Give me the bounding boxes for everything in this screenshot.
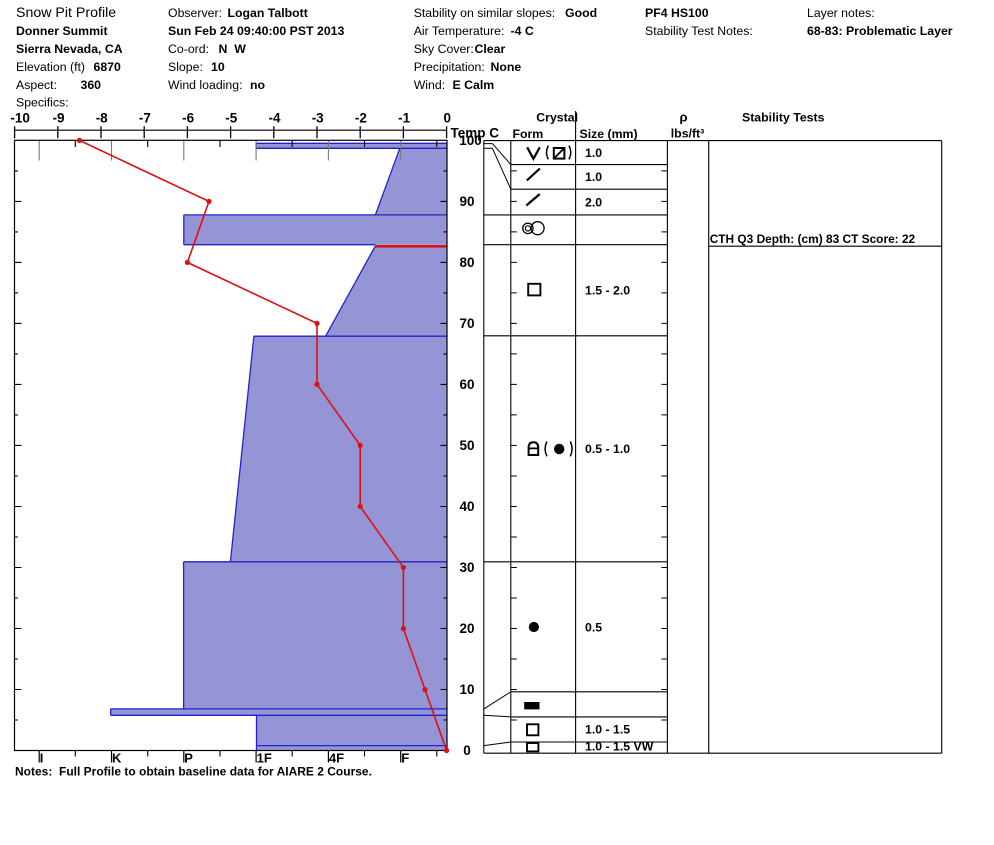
svg-text:30: 30	[459, 560, 474, 575]
svg-text:N W: N W	[219, 42, 247, 56]
svg-text:Layer notes:: Layer notes:	[807, 6, 875, 20]
svg-text:Elevation (ft): Elevation (ft)	[16, 60, 85, 74]
svg-text:K: K	[112, 751, 122, 766]
svg-text:-6: -6	[182, 111, 194, 126]
svg-text:Slope:: Slope:	[168, 60, 203, 74]
svg-text:-4 C: -4 C	[511, 24, 534, 38]
svg-text:10: 10	[211, 60, 225, 74]
svg-text:2.0: 2.0	[585, 196, 602, 210]
svg-text:0.5 - 1.0: 0.5 - 1.0	[585, 442, 630, 456]
svg-text:Stability on similar slopes:: Stability on similar slopes:	[414, 6, 555, 20]
svg-text:P: P	[184, 751, 193, 766]
svg-text:Co-ord:: Co-ord:	[168, 42, 209, 56]
svg-text:1.0: 1.0	[585, 170, 602, 184]
svg-text:-2: -2	[355, 111, 367, 126]
svg-text:360: 360	[81, 78, 102, 92]
svg-text:Form: Form	[513, 127, 544, 141]
svg-text:68-83: Problematic Layer: 68-83: Problematic Layer	[807, 24, 953, 38]
svg-text:4F: 4F	[329, 751, 344, 766]
svg-text:70: 70	[459, 316, 474, 331]
svg-text:Wind loading:: Wind loading:	[168, 78, 243, 92]
svg-text:no: no	[250, 78, 266, 92]
svg-text:20: 20	[459, 621, 474, 636]
svg-text:-8: -8	[96, 111, 108, 126]
svg-text:Sierra Nevada, CA: Sierra Nevada, CA	[16, 42, 123, 56]
svg-text:Sun Feb 24 09:40:00 PST 2013: Sun Feb 24 09:40:00 PST 2013	[168, 24, 345, 38]
svg-text:40: 40	[459, 499, 474, 514]
svg-text:-4: -4	[268, 111, 280, 126]
svg-text:60: 60	[459, 377, 474, 392]
svg-text:Aspect:: Aspect:	[16, 78, 57, 92]
svg-text:Specifics:: Specifics:	[16, 96, 69, 110]
svg-text:-3: -3	[312, 111, 324, 126]
svg-text:1.0: 1.0	[585, 146, 602, 160]
svg-text:0: 0	[463, 743, 471, 758]
svg-text:None: None	[491, 60, 522, 74]
svg-text:1.5 - 2.0: 1.5 - 2.0	[585, 284, 630, 298]
svg-text:-1: -1	[398, 111, 410, 126]
svg-text:10: 10	[459, 682, 474, 697]
svg-text:Sky Cover:: Sky Cover:	[414, 42, 474, 56]
svg-text:Stability Test Notes:: Stability Test Notes:	[645, 24, 753, 38]
svg-text:1.0 - 1.5 VW: 1.0 - 1.5 VW	[585, 740, 654, 754]
svg-text:ρ: ρ	[679, 110, 687, 125]
svg-text:lbs/ft³: lbs/ft³	[671, 127, 704, 141]
svg-text:Good: Good	[565, 6, 597, 20]
svg-text:Air Temperature:: Air Temperature:	[414, 24, 505, 38]
svg-text:-9: -9	[52, 111, 64, 126]
svg-text:Clear: Clear	[475, 42, 506, 56]
svg-text:Snow Pit Profile: Snow Pit Profile	[16, 5, 116, 21]
svg-text:-5: -5	[225, 111, 237, 126]
svg-text:Stability Tests: Stability Tests	[742, 111, 825, 125]
svg-text:Logan Talbott: Logan Talbott	[228, 6, 308, 20]
svg-text:Crystal: Crystal	[536, 111, 578, 125]
svg-text:1F: 1F	[257, 751, 272, 766]
svg-text:E Calm: E Calm	[453, 78, 495, 92]
svg-text:Donner Summit: Donner Summit	[16, 24, 108, 38]
svg-text:Precipitation:: Precipitation:	[414, 60, 485, 74]
svg-text:Notes: Full Profile to obtain: Notes: Full Profile to obtain baseline d…	[15, 765, 372, 779]
svg-text:50: 50	[459, 438, 474, 453]
svg-text:-10: -10	[10, 111, 30, 126]
svg-text:PF4 HS100: PF4 HS100	[645, 6, 709, 20]
svg-text:Observer:: Observer:	[168, 6, 222, 20]
svg-text:-7: -7	[139, 111, 151, 126]
svg-text:I: I	[40, 751, 44, 766]
svg-text:1.0 - 1.5: 1.0 - 1.5	[585, 723, 630, 737]
svg-text:6870: 6870	[94, 60, 122, 74]
svg-text:F: F	[401, 751, 409, 766]
svg-text:Wind:: Wind:	[414, 78, 445, 92]
svg-text:CTH Q3 Depth: (cm) 83 CT Score: CTH Q3 Depth: (cm) 83 CT Score: 22	[710, 232, 916, 246]
svg-text:80: 80	[459, 255, 474, 270]
svg-text:0.5: 0.5	[585, 621, 602, 635]
svg-text:90: 90	[459, 194, 474, 209]
svg-text:0: 0	[444, 111, 452, 126]
svg-text:100: 100	[459, 133, 482, 148]
svg-text:Size (mm): Size (mm)	[580, 127, 638, 141]
